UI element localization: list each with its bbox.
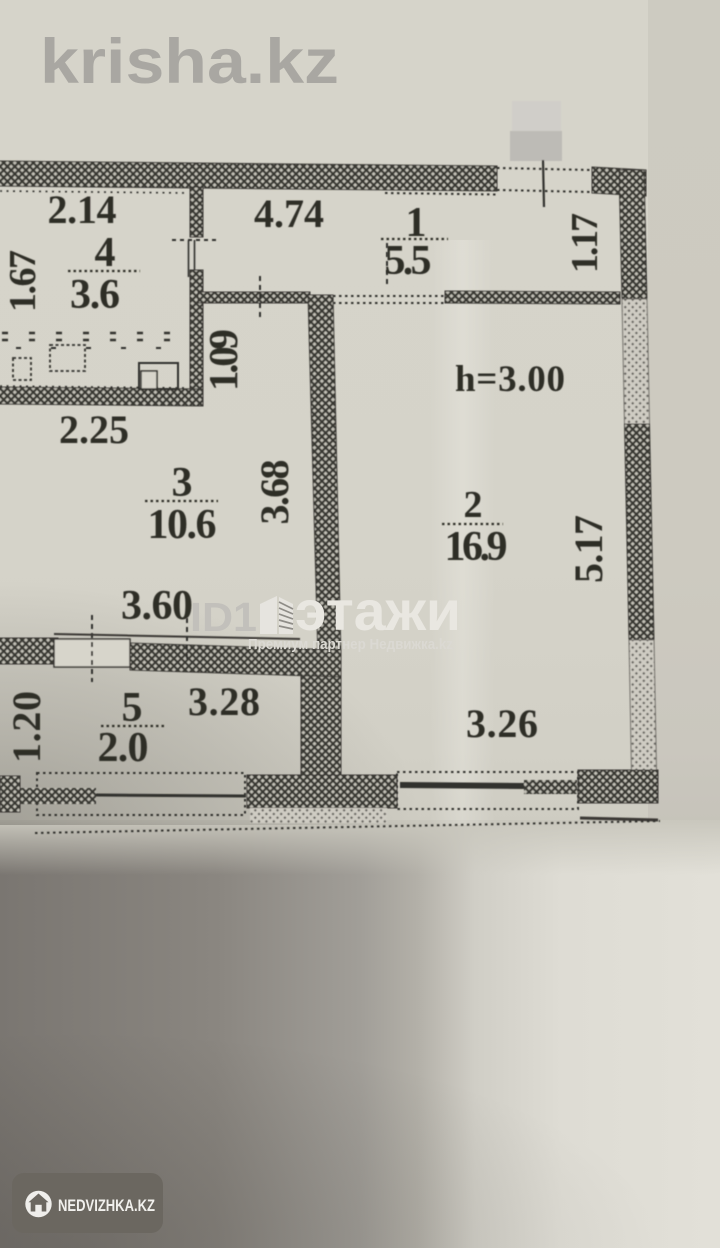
svg-text:ID1: ID1 [190,594,257,640]
svg-text:2.0: 2.0 [98,725,149,771]
svg-text:Премиум партнер Недвижка.kz: Премиум партнер Недвижка.kz [248,636,453,653]
svg-text:3.6: 3.6 [70,272,120,318]
svg-text:10.6: 10.6 [148,502,217,548]
svg-text:NEDVIZHKA.KZ: NEDVIZHKA.KZ [58,1196,155,1215]
svg-text:3.28: 3.28 [188,679,260,724]
svg-text:h=3.00: h=3.00 [455,359,565,400]
svg-text:2: 2 [464,484,483,526]
svg-text:3.26: 3.26 [466,701,538,746]
svg-text:3: 3 [172,460,193,506]
svg-text:4.74: 4.74 [254,191,324,236]
svg-text:4: 4 [95,230,116,276]
svg-text:3.68: 3.68 [252,460,297,525]
svg-text:1.17: 1.17 [564,213,606,273]
svg-text:1.20: 1.20 [4,691,49,763]
svg-text:2.14: 2.14 [48,187,117,232]
svg-text:5.17: 5.17 [566,515,611,583]
svg-text:3.60: 3.60 [121,583,193,629]
svg-text:1.09: 1.09 [200,329,246,391]
svg-text:5.5: 5.5 [385,238,432,284]
svg-text:этажи: этажи [295,579,461,642]
svg-text:16.9: 16.9 [445,524,508,570]
svg-text:2.25: 2.25 [59,407,129,452]
svg-text:1.67: 1.67 [2,250,44,312]
svg-text:krisha.kz: krisha.kz [40,27,339,97]
